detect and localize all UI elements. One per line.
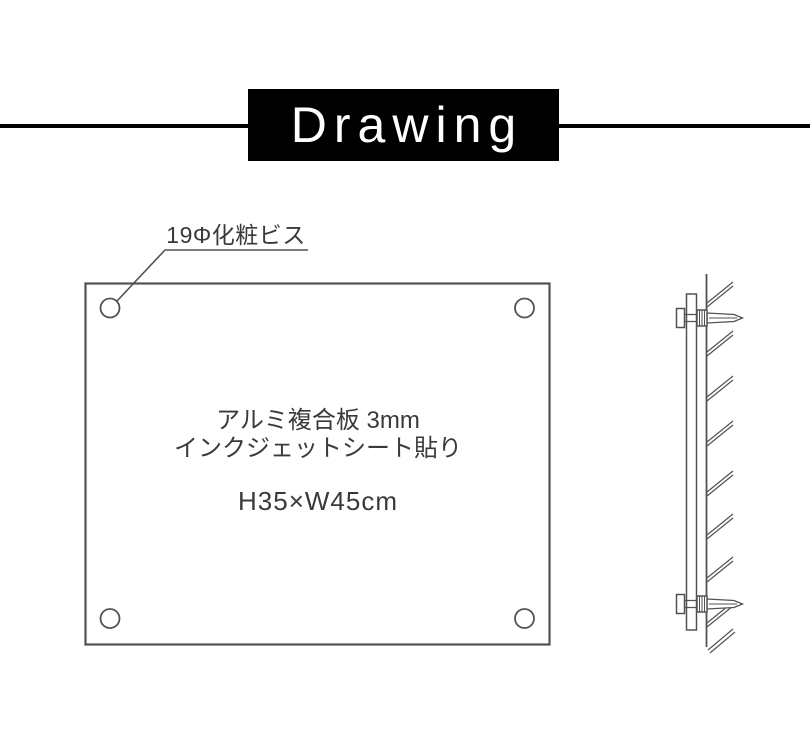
technical-drawing — [0, 0, 810, 756]
wall-hatching — [707, 282, 735, 653]
panel-spec-text: アルミ複合板 3mm インクジェットシート貼り H35×W45cm — [174, 407, 462, 516]
screw-circle-top-left — [101, 299, 120, 318]
screw-cap-bottom — [677, 595, 685, 614]
panel-size-label: H35×W45cm — [174, 486, 462, 516]
callout-leader-line — [117, 250, 308, 301]
panel-material-line2: インクジェットシート貼り — [174, 435, 462, 463]
screw-circle-top-right — [515, 299, 534, 318]
side-panel-edge — [687, 294, 697, 630]
screw-circle-bottom-right — [515, 609, 534, 628]
screw-cap-top — [677, 309, 685, 328]
panel-material-line1: アルミ複合板 3mm — [174, 407, 462, 435]
screw-circle-bottom-left — [101, 609, 120, 628]
screw-callout-label: 19Φ化粧ビス — [166, 216, 305, 250]
drawing-sheet: Drawing — [0, 0, 810, 756]
